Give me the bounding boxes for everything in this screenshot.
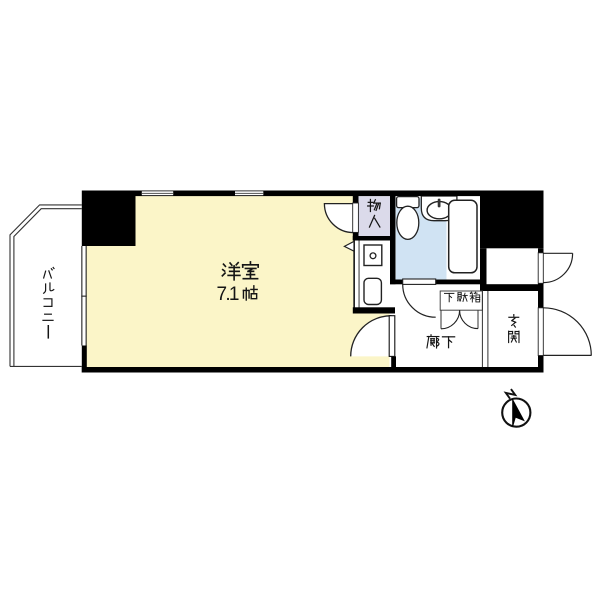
svg-text:7.1: 7.1 [217, 284, 240, 305]
